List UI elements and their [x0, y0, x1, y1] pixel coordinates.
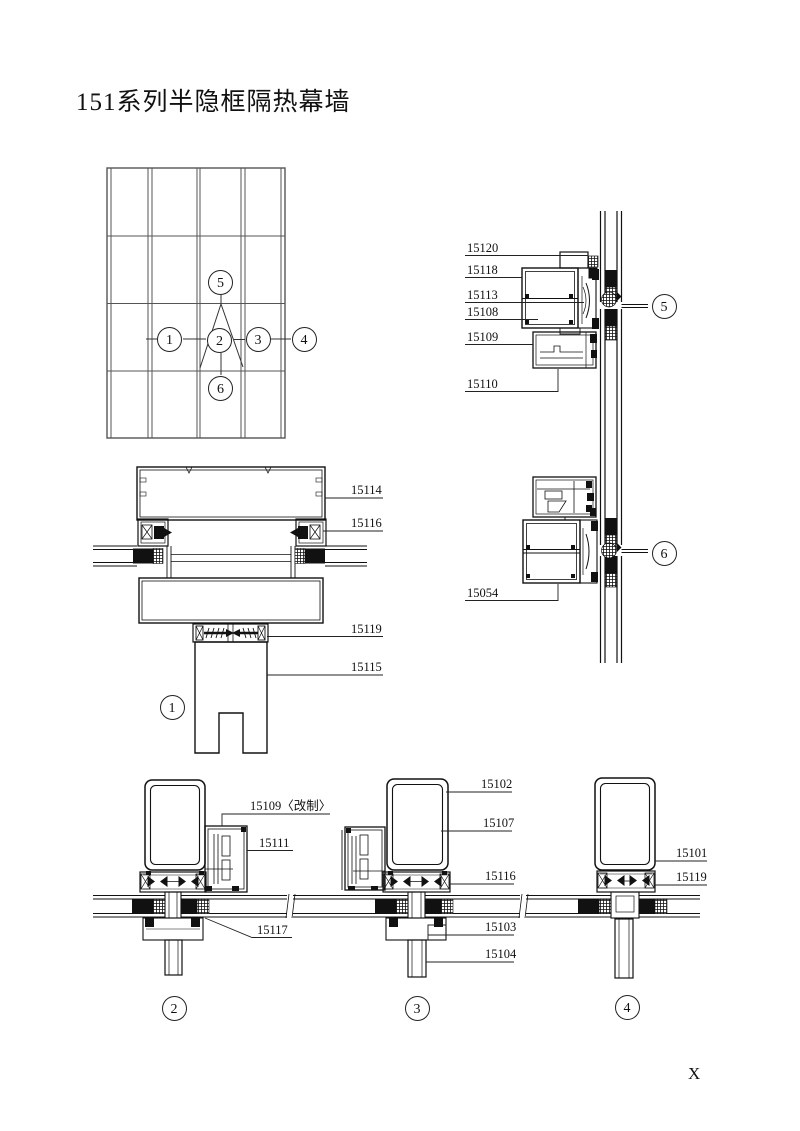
- part-label: 15118: [467, 264, 498, 277]
- detail-marker-2: 2: [162, 996, 187, 1021]
- detail-marker-6: 6: [652, 541, 677, 566]
- elevation-marker-4: 4: [292, 327, 317, 352]
- leader-lines-detail2: [205, 814, 330, 938]
- part-label: 15103: [485, 921, 516, 934]
- elevation-marker-2: 2: [207, 328, 232, 353]
- drawing-linework: [0, 0, 800, 1131]
- part-label: 15119: [351, 623, 382, 636]
- part-label: 15119: [676, 871, 707, 884]
- part-label: 15117: [257, 924, 288, 937]
- drawing-page: 151系列半隐框隔热幕墙: [0, 0, 800, 1131]
- part-label: 15101: [676, 847, 707, 860]
- part-label: 15116: [351, 517, 382, 530]
- glass-stack-right: [601, 211, 649, 663]
- detail-marker-3: 3: [405, 996, 430, 1021]
- round-gasket-joint6: [602, 543, 617, 558]
- part-label: 15054: [467, 587, 498, 600]
- page-mark: X: [688, 1064, 700, 1084]
- elevation-marker-6: 6: [208, 376, 233, 401]
- part-label: 15107: [483, 817, 514, 830]
- part-label: 15108: [467, 306, 498, 319]
- detail-marker-4: 4: [615, 995, 640, 1020]
- part-label: 15109: [467, 331, 498, 344]
- part-label: 15116: [485, 870, 516, 883]
- part-label: 15102: [481, 778, 512, 791]
- elevation-marker-3: 3: [246, 327, 271, 352]
- detail-marker-1: 1: [160, 695, 185, 720]
- part-label: 15120: [467, 242, 498, 255]
- round-gasket-joint5: [602, 292, 617, 307]
- elevation-grid: [107, 168, 291, 438]
- bottom-glass-band: [93, 892, 700, 918]
- detail-1-section: [93, 467, 383, 753]
- elevation-marker-5: 5: [208, 270, 233, 295]
- part-label: 15111: [259, 837, 289, 850]
- detail-marker-5: 5: [652, 294, 677, 319]
- part-label: 15109〈改制〉: [250, 800, 331, 813]
- elevation-marker-1: 1: [157, 327, 182, 352]
- part-label: 15110: [467, 378, 498, 391]
- detail-6-section: [465, 477, 598, 601]
- part-label: 15115: [351, 661, 382, 674]
- part-label: 15114: [351, 484, 382, 497]
- part-label: 15104: [485, 948, 516, 961]
- part-label: 15113: [467, 289, 498, 302]
- screw-glyphs: [204, 628, 258, 638]
